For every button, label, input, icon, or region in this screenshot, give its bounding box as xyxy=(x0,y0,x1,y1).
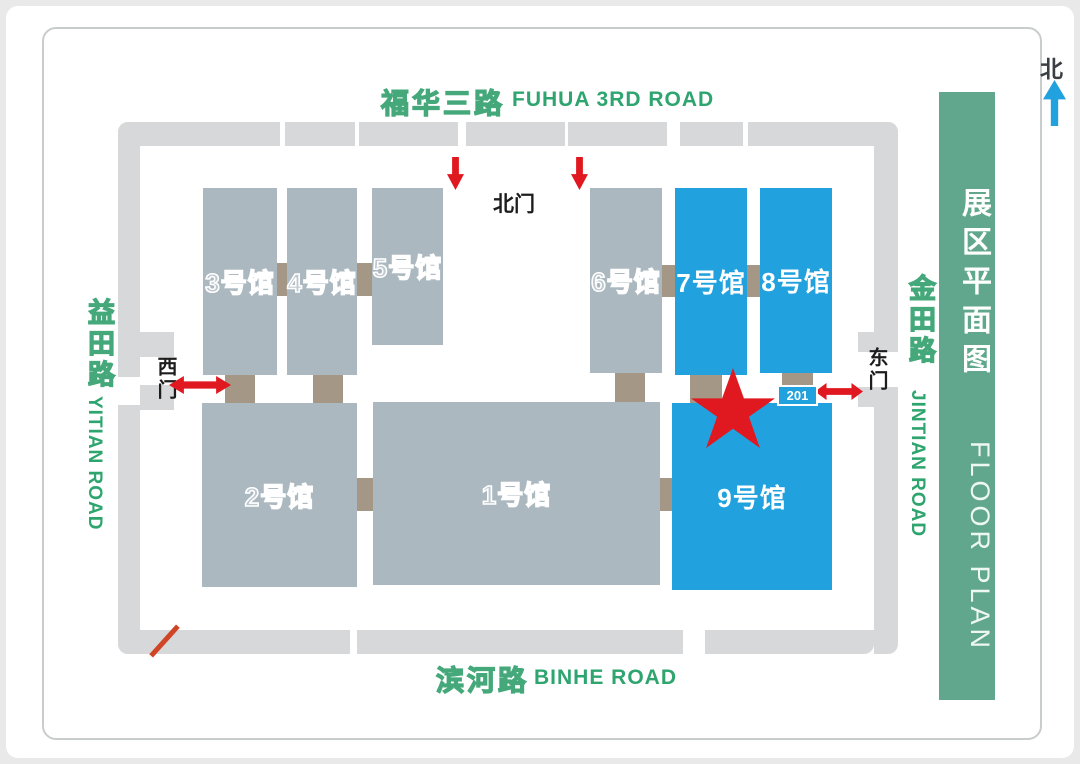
hall-8-label: 8号馆 xyxy=(761,262,830,299)
hall-5: 5号馆 xyxy=(372,188,443,345)
hall-connector-7-8 xyxy=(747,265,760,297)
hall-connector-4-5 xyxy=(357,263,372,296)
floor-plan-title-cn: 展区平面图 xyxy=(939,154,995,414)
hall-2: 2号馆 xyxy=(202,403,357,587)
hall-6-label: 6号馆 xyxy=(591,262,660,299)
walkway-segment xyxy=(466,122,565,146)
hall-4: 4号馆 xyxy=(287,188,357,375)
hall-7: 7号馆 xyxy=(675,188,747,375)
hall-connector-6-1 xyxy=(615,373,645,402)
walkway-segment xyxy=(874,407,898,654)
walkway-segment xyxy=(568,122,667,146)
north-gate-label: 北门 xyxy=(493,188,535,218)
east-gate-label: 东门 xyxy=(862,347,891,393)
binhe-road-label-cn: 滨河路 xyxy=(436,659,529,699)
floor-plan-title-bar: 展区平面图 FLOOR PLAN xyxy=(939,92,995,700)
hall-1: 1号馆 xyxy=(373,402,660,585)
hall-4-label: 4号馆 xyxy=(287,263,356,300)
hall-connector-6-7 xyxy=(662,265,675,297)
walkway-segment xyxy=(118,122,280,146)
hall-connector-4-2 xyxy=(313,372,343,403)
hall-6: 6号馆 xyxy=(590,188,662,373)
north-label: 北 xyxy=(1040,50,1063,84)
walkway-segment xyxy=(118,405,140,654)
booth-201-label: 201 xyxy=(787,388,809,403)
hall-5-label: 5号馆 xyxy=(373,248,442,285)
hall-connector-2-1 xyxy=(357,478,373,511)
walkway-segment xyxy=(705,630,874,654)
walkway-segment xyxy=(118,122,140,377)
floor-plan-title-en: FLOOR PLAN xyxy=(939,402,995,692)
walkway-segment xyxy=(285,122,355,146)
walkway-segment xyxy=(357,630,683,654)
fuhua-road-label-cn: 福华三路 xyxy=(381,82,505,122)
hall-3: 3号馆 xyxy=(203,188,277,375)
hall-3-label: 3号馆 xyxy=(205,263,274,300)
west-gate-label: 西门 xyxy=(151,356,180,402)
hall-2-label: 2号馆 xyxy=(245,477,314,514)
walkway-segment xyxy=(680,122,743,146)
walkway-stub xyxy=(140,332,174,357)
hall-1-label: 1号馆 xyxy=(482,475,551,512)
hall-connector-1-9 xyxy=(660,478,672,511)
binhe-road-label-en: BINHE ROAD xyxy=(534,666,677,690)
jintian-road-label-cn: 金田路 xyxy=(901,274,940,367)
hall-7-label: 7号馆 xyxy=(676,263,745,300)
jintian-road-label-en: JINTIAN ROAD xyxy=(906,390,928,537)
hall-connector-3-2 xyxy=(225,372,255,403)
yitian-road-label-cn: 益田路 xyxy=(80,298,119,391)
fuhua-road-label-en: FUHUA 3RD ROAD xyxy=(512,88,714,112)
booth-201-badge: 201 xyxy=(777,385,818,406)
hall-9-label: 9号馆 xyxy=(717,478,786,515)
yitian-road-label-en: YITIAN ROAD xyxy=(83,396,105,531)
floor-plan-map: 1号馆 2号馆 3号馆 4号馆 5号馆 6号馆 7号馆 8号馆 9号馆 北门 西… xyxy=(0,0,1080,764)
walkway-segment xyxy=(874,122,898,332)
hall-8: 8号馆 xyxy=(760,188,832,373)
walkway-segment xyxy=(359,122,458,146)
